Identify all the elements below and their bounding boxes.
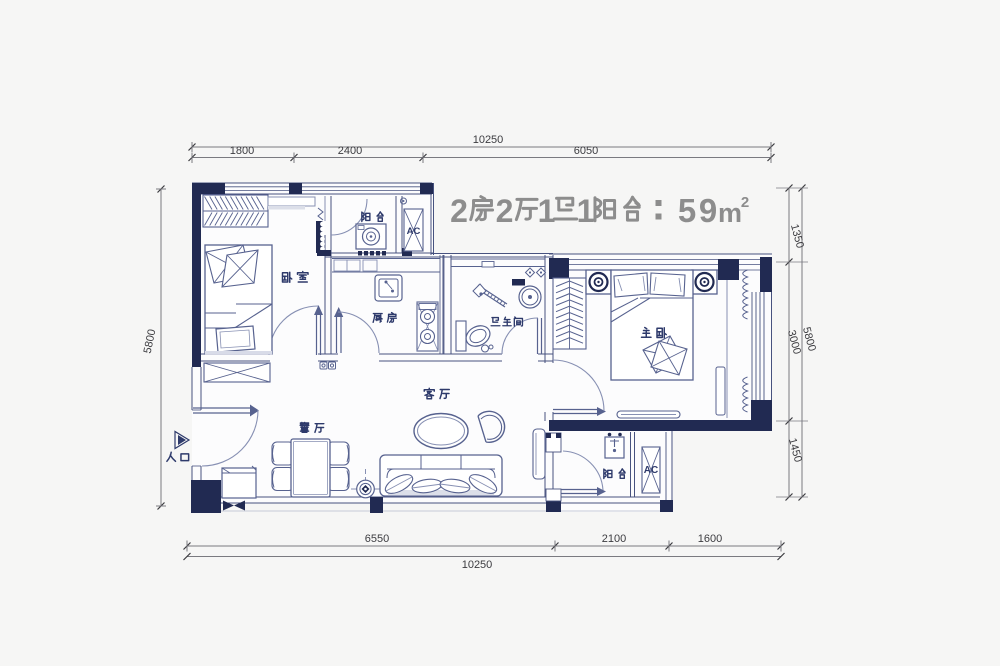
svg-text:9: 9 <box>699 192 717 229</box>
svg-text:1: 1 <box>577 193 595 229</box>
svg-text:2400: 2400 <box>338 145 362 157</box>
svg-text:1600: 1600 <box>698 533 722 545</box>
svg-text:AC: AC <box>644 465 658 476</box>
svg-text:10250: 10250 <box>473 134 504 146</box>
svg-text:6050: 6050 <box>574 145 598 157</box>
svg-text:6550: 6550 <box>365 533 389 545</box>
svg-text:5: 5 <box>678 192 696 229</box>
svg-text:1: 1 <box>538 193 556 229</box>
svg-text:AC: AC <box>407 226 421 237</box>
svg-text:2: 2 <box>496 193 514 229</box>
svg-text:10250: 10250 <box>462 559 493 571</box>
svg-text:m: m <box>718 198 742 228</box>
svg-text:2: 2 <box>450 193 468 229</box>
svg-text:2: 2 <box>741 194 749 211</box>
svg-text:1800: 1800 <box>230 145 254 157</box>
svg-text:2100: 2100 <box>602 533 626 545</box>
